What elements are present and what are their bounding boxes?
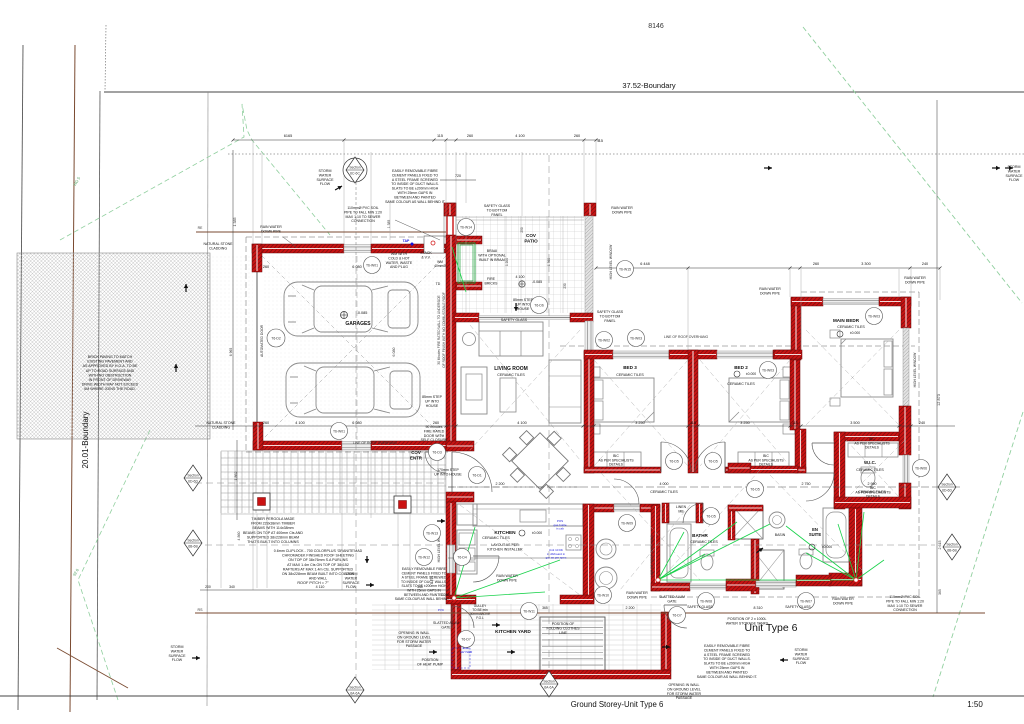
- svg-text:CHROMADEK FINISHED ROOF SHEETI: CHROMADEK FINISHED ROOF SHEETING: [282, 554, 354, 558]
- svg-text:T6-D3: T6-D3: [432, 450, 442, 454]
- svg-text:-0.085: -0.085: [532, 280, 542, 284]
- svg-text:COV: COV: [411, 450, 421, 455]
- svg-text:W.I.C.: W.I.C.: [864, 460, 876, 465]
- svg-text:3 250: 3 250: [635, 421, 645, 425]
- svg-text:T6-W12: T6-W12: [418, 555, 430, 559]
- svg-text:±0.000: ±0.000: [746, 372, 756, 376]
- svg-text:in csb: in csb: [556, 527, 564, 531]
- svg-text:RAIN WATER: RAIN WATER: [832, 597, 854, 601]
- svg-text:GARAGES: GARAGES: [345, 321, 371, 327]
- svg-text:BETWEEN AND PAINTED: BETWEEN AND PAINTED: [394, 195, 436, 199]
- svg-text:SURFACE: SURFACE: [169, 654, 187, 658]
- svg-text:SURFACE: SURFACE: [1006, 174, 1024, 178]
- svg-text:RAIN WATER: RAIN WATER: [260, 225, 282, 229]
- svg-text:CLADDING: CLADDING: [212, 425, 230, 429]
- svg-text:SAFETY GLASS: SAFETY GLASS: [597, 310, 624, 314]
- svg-text:4 110: 4 110: [316, 585, 325, 589]
- svg-text:SLATTED ALUM: SLATTED ALUM: [659, 595, 685, 599]
- svg-text:BUILT IN BRAAI: BUILT IN BRAAI: [479, 258, 505, 262]
- svg-text:T6-W01: T6-W01: [366, 263, 378, 267]
- svg-text:SELF CLOSURE: SELF CLOSURE: [421, 438, 448, 442]
- svg-text:WITH NO OBSTRUCTION: WITH NO OBSTRUCTION: [89, 373, 132, 377]
- svg-text:LINEN: LINEN: [676, 505, 687, 509]
- svg-text:OF HEAT PUMP: OF HEAT PUMP: [417, 662, 444, 666]
- svg-text:F.G.L: F.G.L: [476, 616, 484, 620]
- svg-text:TO INSIDE OF DUCT WALLS.: TO INSIDE OF DUCT WALLS.: [703, 657, 751, 661]
- svg-text:HOUSE: HOUSE: [517, 307, 530, 311]
- svg-text:DOWN PIPE: DOWN PIPE: [905, 280, 926, 284]
- svg-text:BRICK PAVING TO MATCH: BRICK PAVING TO MATCH: [88, 355, 133, 359]
- svg-text:KITCHEN INSTALLER: KITCHEN INSTALLER: [487, 547, 523, 551]
- svg-text:CONNECTION: CONNECTION: [351, 219, 375, 223]
- svg-text:PATIO: PATIO: [524, 239, 538, 244]
- svg-text:WATER: WATER: [171, 649, 184, 653]
- svg-text:BEAMS ON TOP AT 400mm Cts AND: BEAMS ON TOP AT 400mm Cts AND: [243, 531, 303, 535]
- svg-text:PIPE TO FALL MIN 1:20: PIPE TO FALL MIN 1:20: [886, 599, 924, 603]
- svg-text:6A-6A: 6A-6A: [544, 686, 554, 690]
- svg-text:RAIN WATER: RAIN WATER: [611, 206, 633, 210]
- svg-text:TO BOTTOM: TO BOTTOM: [487, 208, 508, 212]
- svg-text:110mmØ PVC SOIL: 110mmØ PVC SOIL: [347, 206, 378, 210]
- svg-text:AND PLUG: AND PLUG: [390, 265, 408, 269]
- svg-text:T6-W14: T6-W14: [460, 225, 472, 229]
- svg-text:CONNECTION: CONNECTION: [893, 608, 917, 612]
- svg-text:T6-W08: T6-W08: [700, 599, 712, 603]
- svg-text:Section: Section: [946, 543, 957, 547]
- svg-text:UP TO ROAD SURFACE AND: UP TO ROAD SURFACE AND: [86, 369, 135, 373]
- svg-text:EASILY REMOVABLE FIBRE: EASILY REMOVABLE FIBRE: [392, 169, 438, 173]
- svg-text:HIGH LEVEL WINDOW: HIGH LEVEL WINDOW: [609, 244, 613, 280]
- svg-text:DETAILS: DETAILS: [865, 446, 880, 450]
- svg-text:T6-W01: T6-W01: [333, 429, 345, 433]
- svg-text:T6-W02: T6-W02: [598, 338, 610, 342]
- svg-text:4 860: 4 860: [237, 532, 241, 541]
- svg-text:CERAMIC TILES: CERAMIC TILES: [856, 468, 884, 472]
- svg-text:260: 260: [467, 134, 473, 138]
- svg-text:KITCHEN YARD: KITCHEN YARD: [495, 629, 531, 635]
- svg-text:WATER: WATER: [319, 173, 332, 177]
- svg-text:STACK: STACK: [420, 251, 432, 255]
- svg-text:WM WITH: WM WITH: [391, 252, 408, 256]
- svg-text:T6-D5: T6-D5: [669, 459, 679, 463]
- svg-text:40mmØ: 40mmØ: [434, 264, 446, 268]
- svg-text:FLOW: FLOW: [1009, 178, 1020, 182]
- svg-text:POSITION: POSITION: [422, 658, 439, 662]
- svg-text:GATE: GATE: [667, 599, 677, 603]
- svg-text:T6-W03: T6-W03: [630, 336, 642, 340]
- svg-text:DETAILS: DETAILS: [759, 463, 774, 467]
- svg-text:240: 240: [919, 421, 925, 425]
- svg-text:TIMBER PERGOLA MADE: TIMBER PERGOLA MADE: [251, 517, 295, 521]
- svg-text:FIRE: FIRE: [487, 277, 496, 281]
- svg-text:FOLDING CLOTHES: FOLDING CLOTHES: [546, 626, 580, 630]
- svg-text:260: 260: [263, 265, 269, 269]
- svg-text:SAFETY GLASS: SAFETY GLASS: [785, 605, 811, 609]
- svg-text:POSITION OF 2 x 1000L: POSITION OF 2 x 1000L: [728, 617, 767, 621]
- svg-text:CERAMIC TILES: CERAMIC TILES: [616, 373, 644, 377]
- svg-text:20.01-Boundary: 20.01-Boundary: [81, 412, 90, 469]
- svg-text:Section: Section: [543, 680, 554, 684]
- svg-text:OPENING IN WALL: OPENING IN WALL: [399, 631, 430, 635]
- svg-text:CERAMIC TILES: CERAMIC TILES: [482, 536, 510, 540]
- svg-text:DOWN PIPE: DOWN PIPE: [833, 601, 854, 605]
- svg-text:1 862: 1 862: [234, 472, 238, 481]
- svg-text:200: 200: [205, 585, 211, 589]
- svg-text:SAME COLOUR AS WALL BEHIND IT.: SAME COLOUR AS WALL BEHIND IT.: [395, 597, 454, 601]
- svg-text:CLADDING: CLADDING: [209, 246, 227, 250]
- svg-text:T6-D2: T6-D2: [271, 336, 281, 340]
- svg-text:T6-D7: T6-D7: [672, 613, 682, 617]
- svg-text:NATURAL STONE: NATURAL STONE: [207, 421, 237, 425]
- svg-text:PANEL: PANEL: [604, 319, 615, 323]
- svg-text:Section: Section: [349, 166, 360, 170]
- svg-text:BASIN: BASIN: [775, 533, 786, 537]
- svg-text:NATURAL STONE: NATURAL STONE: [204, 242, 234, 246]
- svg-text:A STEEL FRAME SCREWED: A STEEL FRAME SCREWED: [704, 653, 751, 657]
- svg-text:STORM: STORM: [795, 648, 808, 652]
- svg-text:115: 115: [597, 139, 603, 143]
- svg-text:T6-W07: T6-W07: [800, 599, 812, 603]
- svg-text:3 250: 3 250: [740, 421, 750, 425]
- svg-text:2 200: 2 200: [626, 606, 635, 610]
- svg-text:UP INTO: UP INTO: [516, 302, 530, 306]
- svg-text:SAME COLOUR AS WALL BEHIND IT.: SAME COLOUR AS WALL BEHIND IT.: [697, 675, 758, 679]
- svg-text:4 000: 4 000: [660, 482, 669, 486]
- svg-text:ON TOP OF 38x76mm S.A PURLINS: ON TOP OF 38x76mm S.A PURLINS: [288, 558, 348, 562]
- svg-text:FIRE RATED: FIRE RATED: [424, 429, 445, 433]
- svg-text:4 100: 4 100: [295, 421, 305, 425]
- svg-text:110mmØ PVC SOIL: 110mmØ PVC SOIL: [889, 595, 920, 599]
- svg-text:SLATTED ALUM: SLATTED ALUM: [433, 621, 459, 625]
- svg-text:COV: COV: [526, 233, 537, 238]
- svg-text:SAME COLOUR AS WALL BEHIND IT: SAME COLOUR AS WALL BEHIND IT: [385, 200, 446, 204]
- svg-text:T6-D6: T6-D6: [534, 303, 544, 307]
- svg-text:RAIN WATER: RAIN WATER: [904, 276, 926, 280]
- svg-text:ON GROUND LEVEL: ON GROUND LEVEL: [397, 635, 431, 639]
- svg-text:SUITE: SUITE: [809, 532, 822, 537]
- svg-text:115: 115: [792, 421, 798, 425]
- svg-text:AT MAX 1.4m Cts ON TOP OF 38x1: AT MAX 1.4m Cts ON TOP OF 38x152: [287, 563, 349, 567]
- svg-text:4 100: 4 100: [515, 134, 525, 138]
- svg-text:SAFETY GLASS: SAFETY GLASS: [484, 204, 511, 208]
- svg-text:IN FRONT OF DRIVEWAY: IN FRONT OF DRIVEWAY: [89, 378, 132, 382]
- svg-text:85mm STEP: 85mm STEP: [513, 298, 534, 302]
- svg-text:UP INTO: UP INTO: [425, 399, 439, 403]
- svg-text:3 300: 3 300: [861, 262, 871, 266]
- svg-text:6M WHERE JOINS THE ROAD.: 6M WHERE JOINS THE ROAD.: [84, 387, 135, 391]
- svg-text:240: 240: [922, 262, 928, 266]
- svg-text:LIVING ROOM: LIVING ROOM: [494, 366, 528, 372]
- svg-text:T6-D5: T6-D5: [750, 487, 760, 491]
- svg-text:PVC: PVC: [438, 608, 445, 612]
- svg-text:230: 230: [563, 283, 567, 289]
- svg-text:Unit Type 6: Unit Type 6: [745, 622, 798, 634]
- svg-text:AUTOMATED DOOR: AUTOMATED DOOR: [260, 324, 264, 357]
- svg-text:4 100: 4 100: [517, 421, 527, 425]
- svg-text:1 385: 1 385: [387, 220, 391, 229]
- svg-text:BETWEEN AND PAINTED: BETWEEN AND PAINTED: [706, 670, 748, 674]
- svg-text:AND WALL: AND WALL: [309, 577, 327, 581]
- svg-text:0.6mm CLIPLOCK - 700 COLORPLUS: 0.6mm CLIPLOCK - 700 COLORPLUS 'GRANITE'…: [274, 549, 363, 553]
- svg-text:STORM: STORM: [345, 572, 358, 576]
- svg-text:T6-W03: T6-W03: [762, 368, 774, 372]
- svg-text:BEAMS WITH 114x38mm: BEAMS WITH 114x38mm: [252, 526, 293, 530]
- svg-text:6 080: 6 080: [352, 265, 362, 269]
- svg-text:DOWN PIPE: DOWN PIPE: [497, 578, 518, 582]
- svg-text:TAP: TAP: [403, 239, 410, 243]
- svg-text:BED 2: BED 2: [734, 365, 748, 370]
- svg-text:2 750: 2 750: [802, 482, 811, 486]
- svg-text:6C-6C: 6C-6C: [350, 172, 360, 176]
- svg-text:T6-D4: T6-D4: [457, 555, 467, 559]
- svg-text:PASSAGE: PASSAGE: [406, 644, 423, 648]
- svg-text:MB: MB: [678, 509, 684, 513]
- svg-text:CEMENT PANELS FIXED TO: CEMENT PANELS FIXED TO: [392, 173, 439, 177]
- svg-text:OF ROOF FINISH WITH NO COMBUST: OF ROOF FINISH WITH NO COMBUSTABLE ROOF: [442, 292, 446, 367]
- svg-text:PASSAGE: PASSAGE: [676, 696, 693, 700]
- svg-text:6D-6D: 6D-6D: [942, 489, 952, 493]
- svg-text:HIGH LEVEL WINDOW: HIGH LEVEL WINDOW: [913, 352, 917, 388]
- svg-text:115: 115: [437, 134, 443, 138]
- svg-text:Section: Section: [349, 686, 360, 690]
- svg-text:CERAMIC TILES: CERAMIC TILES: [650, 490, 678, 494]
- svg-text:340: 340: [229, 585, 235, 589]
- svg-text:720: 720: [455, 174, 461, 178]
- svg-text:260: 260: [813, 262, 819, 266]
- svg-text:SUPPORTED 38x228mm BEAM: SUPPORTED 38x228mm BEAM: [247, 535, 299, 539]
- svg-text:POSITION OF: POSITION OF: [552, 622, 575, 626]
- svg-text:FLOW: FLOW: [320, 182, 331, 186]
- svg-text:T6-W03: T6-W03: [868, 314, 880, 318]
- svg-text:T6-W15: T6-W15: [619, 267, 631, 271]
- svg-text:RAIN WATER: RAIN WATER: [496, 574, 518, 578]
- svg-text:UP INTO HOUSE: UP INTO HOUSE: [434, 472, 462, 476]
- svg-text:FROM 228x38mm TIMBER: FROM 228x38mm TIMBER: [251, 522, 295, 526]
- svg-text:AS APPROVED BY H.O.A. TO BE: AS APPROVED BY H.O.A. TO BE: [83, 364, 138, 368]
- svg-text:±0.000: ±0.000: [822, 545, 832, 549]
- svg-text:CEMENT PANELS FIXED TO: CEMENT PANELS FIXED TO: [704, 648, 751, 652]
- svg-text:ENTR: ENTR: [410, 455, 423, 460]
- svg-text:30 Minutes FIRE RATED WALL TO: 30 Minutes FIRE RATED WALL TO UNDERSIDE: [437, 295, 441, 364]
- svg-text:CERAMIC TILES: CERAMIC TILES: [837, 325, 865, 329]
- svg-text:T6-D5: T6-D5: [706, 514, 716, 518]
- svg-text:2 615: 2 615: [938, 541, 942, 550]
- svg-text:4 100: 4 100: [516, 275, 525, 279]
- svg-text:WATER: WATER: [1008, 169, 1021, 173]
- svg-text:FOR STORM WATER: FOR STORM WATER: [397, 640, 432, 644]
- svg-text:BATHR: BATHR: [692, 533, 708, 538]
- svg-text:SLATS TO BE ±200mm HIGH: SLATS TO BE ±200mm HIGH: [704, 662, 751, 666]
- svg-text:ROOF PITCH = 7°: ROOF PITCH = 7°: [297, 581, 329, 585]
- svg-text:BRAAI: BRAAI: [487, 249, 498, 253]
- svg-text:DOOR WITH: DOOR WITH: [424, 434, 445, 438]
- svg-text:90 minutes: 90 minutes: [425, 425, 442, 429]
- svg-text:260: 260: [263, 421, 269, 425]
- svg-text:THAT'S BUILT INTO COLUMNS: THAT'S BUILT INTO COLUMNS: [247, 540, 299, 544]
- svg-text:WATER: WATER: [795, 652, 808, 656]
- svg-text:LINE: LINE: [559, 631, 567, 635]
- svg-text:±0.000: ±0.000: [532, 531, 542, 535]
- svg-text:6B-6B: 6B-6B: [188, 545, 198, 549]
- svg-text:260: 260: [574, 134, 580, 138]
- svg-text:BED 3: BED 3: [623, 365, 637, 370]
- svg-text:6 965: 6 965: [229, 348, 233, 357]
- svg-text:2 200: 2 200: [496, 482, 505, 486]
- svg-text:365: 365: [542, 606, 548, 610]
- svg-text:365: 365: [938, 589, 942, 595]
- svg-text:T6-D5: T6-D5: [708, 459, 718, 463]
- svg-text:Section: Section: [187, 474, 198, 478]
- svg-text:6A-6A: 6A-6A: [350, 692, 360, 696]
- svg-text:8 310: 8 310: [754, 606, 763, 610]
- svg-text:OPENING IN WALL: OPENING IN WALL: [669, 683, 700, 687]
- svg-text:MAX 1:10 TO SEWER: MAX 1:10 TO SEWER: [888, 604, 923, 608]
- svg-text:170mm STEP: 170mm STEP: [437, 468, 459, 472]
- svg-text:& V.V.: & V.V.: [421, 255, 430, 259]
- svg-text:PANEL: PANEL: [491, 213, 502, 217]
- svg-text:FOR STORM WATER: FOR STORM WATER: [667, 692, 702, 696]
- svg-text:1:50: 1:50: [967, 700, 983, 709]
- svg-text:DETAILS: DETAILS: [866, 495, 881, 499]
- svg-text:CERAMIC TILES: CERAMIC TILES: [497, 373, 525, 377]
- svg-text:12 873: 12 873: [937, 394, 941, 406]
- svg-text:LINE OF ROOF OVERHANG: LINE OF ROOF OVERHANG: [664, 335, 709, 339]
- svg-text:MAIN BEDR: MAIN BEDR: [833, 318, 860, 323]
- svg-text:6 448: 6 448: [640, 262, 650, 266]
- svg-text:1 385: 1 385: [233, 218, 237, 227]
- svg-text:STORM: STORM: [171, 645, 184, 649]
- svg-text:T6-D7: T6-D7: [461, 637, 471, 641]
- svg-text:37.52-Boundary: 37.52-Boundary: [622, 81, 676, 90]
- svg-text:-0.085: -0.085: [357, 311, 368, 315]
- svg-text:T6-W09: T6-W09: [621, 521, 633, 525]
- svg-text:DETAILS: DETAILS: [609, 463, 624, 467]
- svg-text:RE: RE: [198, 226, 203, 230]
- svg-text:A STEEL FRAME SCREWED: A STEEL FRAME SCREWED: [392, 178, 439, 182]
- svg-text:WITH 25mm GAPS IN: WITH 25mm GAPS IN: [398, 191, 433, 195]
- svg-text:FLOW: FLOW: [346, 585, 357, 589]
- svg-text:6B-6B: 6B-6B: [947, 549, 957, 553]
- svg-text:SLATS TO BE ±200mm HIGH: SLATS TO BE ±200mm HIGH: [392, 187, 439, 191]
- svg-text:DOWN PIPE: DOWN PIPE: [261, 229, 282, 233]
- svg-text:T6-W06: T6-W06: [915, 466, 927, 470]
- svg-text:TD: TD: [436, 282, 441, 286]
- svg-text:T6-W10: T6-W10: [597, 593, 609, 597]
- svg-text:EASILY REMOVABLE FIBRE: EASILY REMOVABLE FIBRE: [704, 644, 750, 648]
- svg-text:6 080: 6 080: [352, 421, 362, 425]
- svg-text:WITH 25mm GAPS IN: WITH 25mm GAPS IN: [710, 666, 745, 670]
- svg-text:8146: 8146: [648, 23, 664, 30]
- svg-text:DOWN PIPE: DOWN PIPE: [612, 210, 633, 214]
- svg-text:SAFETY GLASS: SAFETY GLASS: [501, 318, 528, 322]
- svg-text:SURFACE: SURFACE: [343, 581, 361, 585]
- svg-text:WATER, WASTE: WATER, WASTE: [386, 261, 413, 265]
- svg-text:COLD & HOT: COLD & HOT: [388, 256, 410, 260]
- svg-text:Section: Section: [941, 483, 952, 487]
- svg-text:DOWN PIPE: DOWN PIPE: [760, 291, 781, 295]
- svg-text:RAFTERS AT MAX 1.4m Cts. SUPPO: RAFTERS AT MAX 1.4m Cts. SUPPORTED: [283, 567, 354, 571]
- svg-text:WITH OPTIONAL: WITH OPTIONAL: [478, 253, 506, 257]
- svg-text:SAFETY GLASS: SAFETY GLASS: [687, 605, 713, 609]
- svg-text:EXISTING PAVEMENT AND: EXISTING PAVEMENT AND: [87, 360, 133, 364]
- svg-text:6 080: 6 080: [392, 348, 396, 357]
- svg-text:Ground Storey-Unit Type 6: Ground Storey-Unit Type 6: [571, 700, 664, 709]
- svg-text:±0.000: ±0.000: [850, 331, 860, 335]
- svg-text:SURFACE: SURFACE: [317, 178, 335, 182]
- svg-text:T6-W13: T6-W13: [426, 531, 438, 535]
- svg-text:BRICKS: BRICKS: [484, 281, 498, 285]
- svg-text:PIPE TO FALL MIN 1:20: PIPE TO FALL MIN 1:20: [344, 210, 382, 214]
- svg-text:HOUSE: HOUSE: [426, 404, 439, 408]
- svg-text:CERAMIC TILES: CERAMIC TILES: [727, 382, 755, 386]
- svg-text:GATE: GATE: [441, 625, 451, 629]
- svg-text:85mm STEP: 85mm STEP: [422, 395, 443, 399]
- svg-text:DRIVE WIDTH MAY NOT EXCEED: DRIVE WIDTH MAY NOT EXCEED: [82, 383, 139, 387]
- svg-text:RS: RS: [198, 608, 204, 612]
- svg-text:FLOW: FLOW: [796, 661, 807, 665]
- svg-text:TO INSIDE OF DUCT WALLS.: TO INSIDE OF DUCT WALLS.: [391, 182, 439, 186]
- svg-text:MAX 1:10 TO SEWER: MAX 1:10 TO SEWER: [346, 215, 381, 219]
- svg-text:RAIN WATER: RAIN WATER: [759, 287, 781, 291]
- svg-text:FLOW: FLOW: [172, 658, 183, 662]
- svg-text:1 200: 1 200: [505, 258, 509, 266]
- svg-text:CERAMIC TILES: CERAMIC TILES: [690, 540, 718, 544]
- svg-text:T6-D1: T6-D1: [472, 473, 482, 477]
- svg-text:RAIN WATER: RAIN WATER: [626, 591, 648, 595]
- svg-text:TO BOTTOM: TO BOTTOM: [600, 314, 621, 318]
- svg-text:6165: 6165: [284, 134, 292, 138]
- svg-text:T6-W11: T6-W11: [523, 609, 535, 613]
- svg-text:115: 115: [690, 421, 696, 425]
- svg-text:ON GROUND LEVEL: ON GROUND LEVEL: [667, 687, 701, 691]
- svg-text:STORM: STORM: [319, 169, 332, 173]
- svg-text:GEYSER: GEYSER: [460, 650, 473, 654]
- svg-text:3 500: 3 500: [850, 421, 860, 425]
- svg-text:WATER: WATER: [345, 576, 358, 580]
- svg-text:250: 250: [520, 227, 524, 233]
- svg-text:SURFACE: SURFACE: [793, 657, 811, 661]
- svg-text:Section: Section: [187, 539, 198, 543]
- svg-text:LINE OF ROOF OVERHANG: LINE OF ROOF OVERHANG: [353, 441, 398, 445]
- svg-text:DOWN PIPE: DOWN PIPE: [627, 595, 648, 599]
- svg-text:LINE OF ROOF OVERHANG: LINE OF ROOF OVERHANG: [650, 535, 654, 577]
